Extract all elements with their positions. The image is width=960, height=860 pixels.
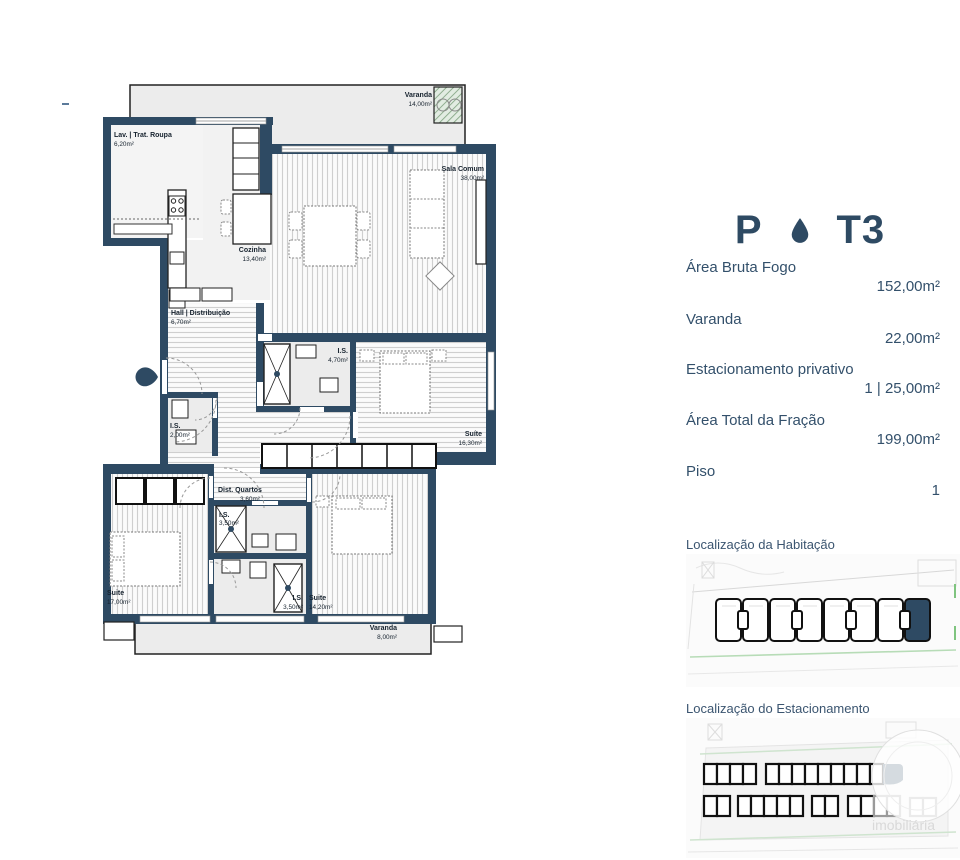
stair-tab — [738, 611, 748, 629]
room-label: Cozinha — [239, 247, 266, 254]
hall-cabinet — [170, 288, 200, 301]
wardrobe-row — [262, 444, 436, 468]
spec-value: 22,00m² — [885, 330, 940, 347]
spec-value: 1 — [932, 482, 940, 499]
spec-piso: Piso 1 — [686, 463, 940, 505]
habitacao-map-title: Localização da Habitação — [686, 537, 835, 552]
building-blocks — [716, 599, 930, 641]
room-area: 6,70m² — [171, 319, 191, 326]
spec-estacionamento: Estacionamento privativo 1 | 25,00m² — [686, 361, 940, 403]
corridor-floor — [260, 408, 356, 446]
room-area: 14,20m² — [309, 604, 332, 611]
kitchen-island — [233, 194, 271, 244]
stair-tab — [846, 611, 856, 629]
estacionamento-map: imobiliária — [686, 718, 960, 858]
room-area: 6,20m² — [114, 141, 134, 148]
chair — [289, 212, 302, 230]
room-label: Lav. | Trat. Roupa — [114, 132, 172, 139]
room-label: Hall | Distribuição — [171, 310, 230, 317]
sink-icon — [252, 534, 268, 547]
stool — [221, 200, 231, 214]
room-area: 14,00m² — [409, 101, 432, 108]
block-letter: P — [735, 208, 763, 253]
habitacao-map — [686, 554, 960, 687]
room-label: I.S. — [292, 595, 303, 602]
sofa — [410, 170, 444, 258]
room-label: Suíte — [465, 431, 482, 438]
sink-icon — [296, 345, 316, 358]
stair-tab — [792, 611, 802, 629]
spec-label: Área Bruta Fogo — [686, 259, 796, 276]
chair — [357, 240, 370, 258]
wardrobe — [176, 478, 204, 504]
room-area: 17,00m² — [107, 599, 130, 606]
room-area: 3,50m² — [283, 604, 303, 611]
room-label: Suite — [107, 590, 124, 597]
estacionamento-map-title: Localização do Estacionamento — [686, 701, 870, 716]
toilet-icon — [250, 562, 266, 578]
toilet-icon — [320, 378, 338, 392]
spec-area-bruta: Área Bruta Fogo 152,00m² — [686, 259, 940, 301]
brochure-page: Varanda 14,00m² Lav. | Trat. Roupa 6,20m… — [0, 0, 960, 860]
room-label: Dist. Quartos — [218, 487, 262, 494]
drop-icon — [789, 217, 811, 245]
spec-value: 1 | 25,00m² — [864, 380, 940, 397]
unit-title: P T3 — [670, 208, 950, 253]
kitchen-cabinets — [233, 128, 259, 190]
wardrobe — [146, 478, 174, 504]
room-area: 3,60m² — [240, 496, 260, 503]
spec-label: Varanda — [686, 311, 742, 328]
sink-icon — [222, 560, 240, 573]
toilet-icon — [172, 400, 188, 418]
living-floor — [270, 152, 488, 337]
room-label: I.S. — [337, 348, 348, 355]
stair-tab — [900, 611, 910, 629]
hall-cabinet — [202, 288, 232, 301]
spec-varanda: Varanda 22,00m² — [686, 311, 940, 353]
room-area: 2,00m² — [170, 432, 190, 439]
spec-value: 152,00m² — [877, 278, 940, 295]
room-area: 8,00m² — [377, 634, 397, 641]
entrance-drop-icon — [136, 367, 159, 386]
wardrobe — [116, 478, 144, 504]
spec-area-total: Área Total da Fração 199,00m² — [686, 412, 940, 454]
sink-icon — [170, 252, 184, 264]
nightstand — [432, 350, 446, 361]
room-area: 4,70m² — [328, 357, 348, 364]
toilet-icon — [276, 534, 296, 550]
room-area: 38,00m² — [461, 175, 484, 182]
logo-watermark-circle — [872, 730, 960, 822]
chair — [357, 212, 370, 230]
room-label: I.S. — [219, 512, 230, 519]
chair — [289, 240, 302, 258]
typology: T3 — [837, 208, 886, 253]
room-label: Varanda — [370, 625, 397, 632]
planter — [434, 87, 462, 123]
watermark-text: imobiliária — [872, 817, 935, 833]
spec-value: 199,00m² — [877, 431, 940, 448]
room-area: 3,50m² — [219, 520, 239, 527]
floor-plan: Varanda 14,00m² Lav. | Trat. Roupa 6,20m… — [50, 78, 520, 668]
room-label: Varanda — [405, 92, 432, 99]
tv-unit — [476, 180, 486, 264]
room-area: 16,30m² — [459, 440, 482, 447]
dining-table — [304, 206, 356, 266]
stool — [221, 222, 231, 236]
room-label: I.S. — [170, 423, 181, 430]
spec-label: Estacionamento privativo — [686, 361, 854, 378]
spec-label: Piso — [686, 463, 715, 480]
spec-label: Área Total da Fração — [686, 412, 825, 429]
room-label: Sala Comum — [442, 166, 484, 173]
room-label: Suite — [309, 595, 326, 602]
room-area: 13,40m² — [243, 256, 266, 263]
nightstand — [360, 350, 374, 361]
laundry-counter — [114, 224, 172, 234]
